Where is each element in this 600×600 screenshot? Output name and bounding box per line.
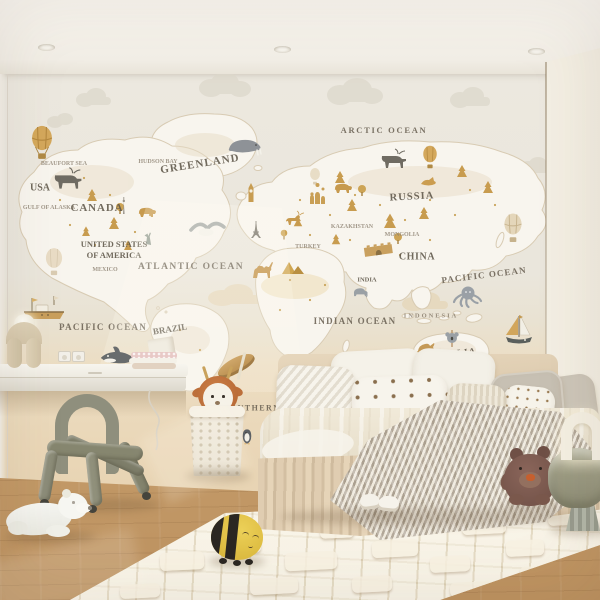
bee-foot	[233, 560, 241, 566]
lamp-leg	[7, 338, 22, 368]
teddy-eye	[519, 467, 522, 470]
bee-body	[211, 514, 263, 560]
bear-nose	[88, 506, 92, 510]
deer-nose	[215, 401, 220, 405]
recessed-spotlight-icon	[274, 46, 291, 53]
map-label-hudson-bay: Hudson Bay	[138, 159, 177, 165]
bedroom-scene: Arctic Ocean Greenland USA Canada United…	[0, 0, 600, 600]
bee-smile	[248, 544, 253, 548]
map-label-russia: Russia	[389, 190, 434, 203]
basket-rim	[189, 406, 245, 417]
bee-eye-closed	[242, 532, 250, 540]
deer-eye	[211, 395, 214, 398]
book	[132, 363, 176, 369]
deer-eye	[222, 395, 225, 398]
octopus-icon	[454, 287, 481, 308]
baby-shoes	[360, 490, 406, 518]
bee-plush	[209, 514, 265, 568]
map-label-indian-ocean: Indian Ocean	[314, 316, 397, 326]
map-label-kazakhstan: Kazakhstan	[331, 224, 373, 230]
bear-rear-leg	[8, 521, 28, 535]
map-label-usa: USA	[30, 183, 50, 194]
sailboat-icon	[506, 315, 532, 344]
bee-stripe	[211, 514, 225, 560]
bear-ear	[62, 489, 71, 498]
floating-desk-front	[0, 377, 186, 391]
teddy-foot	[509, 494, 524, 505]
arch-lamp	[561, 412, 600, 460]
map-label-indonesia: Indonesia	[404, 313, 458, 320]
desk-drawer-groove	[88, 372, 102, 374]
bee-foot	[245, 559, 253, 565]
shoe	[377, 495, 399, 512]
map-label-gulf-of-alaska: Gulf of Alaska	[23, 205, 75, 211]
map-label-india: India	[357, 277, 376, 284]
ceiling	[0, 0, 600, 74]
map-label-united-states-1: United States	[81, 239, 148, 249]
chair-caster	[142, 492, 151, 500]
basket-shadow	[186, 470, 250, 482]
map-label-arctic-ocean: Arctic Ocean	[341, 125, 428, 135]
big-ben-icon	[249, 183, 254, 202]
map-label-united-states-2: of America	[87, 250, 142, 260]
map-label-turkey: Turkey	[295, 244, 321, 250]
book-stack	[129, 338, 181, 370]
recessed-spotlight-icon	[38, 44, 55, 51]
map-label-atlantic-ocean: Atlantic Ocean	[138, 262, 244, 272]
teddy-eye	[539, 467, 542, 470]
wall-outlet	[72, 351, 85, 362]
wall-outlet	[58, 351, 71, 362]
map-label-pacific-ocean-left: Pacific Ocean	[59, 322, 147, 332]
map-label-mongolia: Mongolia	[385, 232, 420, 238]
sculptural-lamp	[6, 314, 42, 368]
map-label-beaufort-sea: Beaufort Sea	[41, 161, 87, 167]
map-label-china: China	[399, 252, 435, 263]
polar-bear-plush	[6, 487, 98, 545]
bear-eye	[72, 501, 75, 504]
teddy-nose	[526, 474, 535, 481]
lamp-leg	[26, 338, 41, 368]
bear-paw	[46, 525, 70, 537]
penguin-icon	[243, 429, 252, 443]
map-label-mexico: Mexico	[92, 267, 117, 273]
bee-stripe	[224, 514, 240, 560]
recessed-spotlight-icon	[528, 48, 545, 55]
bee-eye-closed	[252, 535, 260, 543]
map-label-canada: Canada	[71, 202, 124, 214]
teddy-foot	[535, 494, 550, 505]
